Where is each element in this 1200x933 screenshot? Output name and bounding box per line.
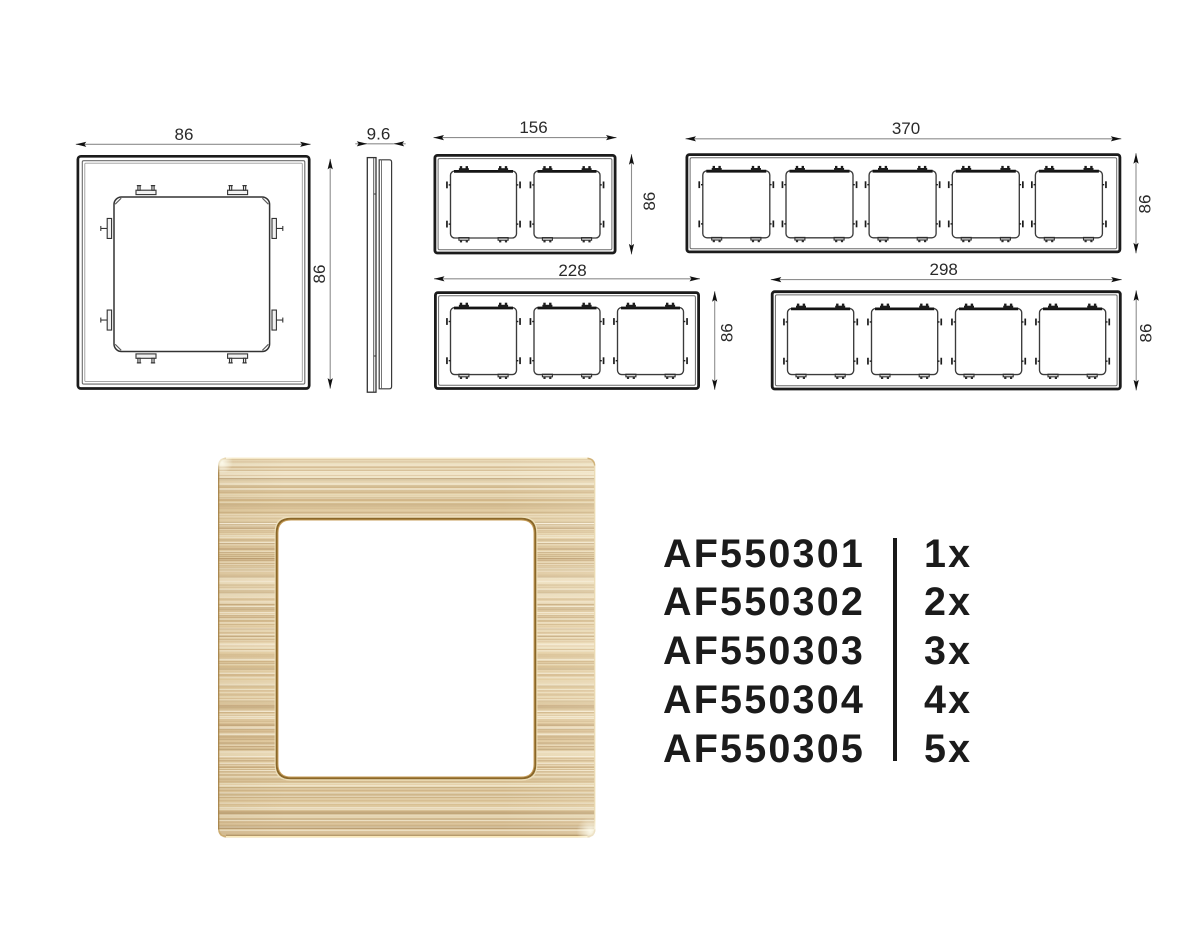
svg-text:86: 86 <box>717 323 736 342</box>
svg-text:86: 86 <box>175 125 194 144</box>
svg-text:86: 86 <box>310 265 329 284</box>
svg-text:9.6: 9.6 <box>367 124 391 143</box>
svg-text:298: 298 <box>930 260 958 279</box>
svg-text:86: 86 <box>1137 324 1156 343</box>
svg-text:228: 228 <box>558 261 586 280</box>
svg-text:156: 156 <box>519 118 547 137</box>
svg-text:86: 86 <box>640 192 659 211</box>
svg-text:370: 370 <box>892 119 920 138</box>
svg-text:86: 86 <box>1135 195 1154 214</box>
